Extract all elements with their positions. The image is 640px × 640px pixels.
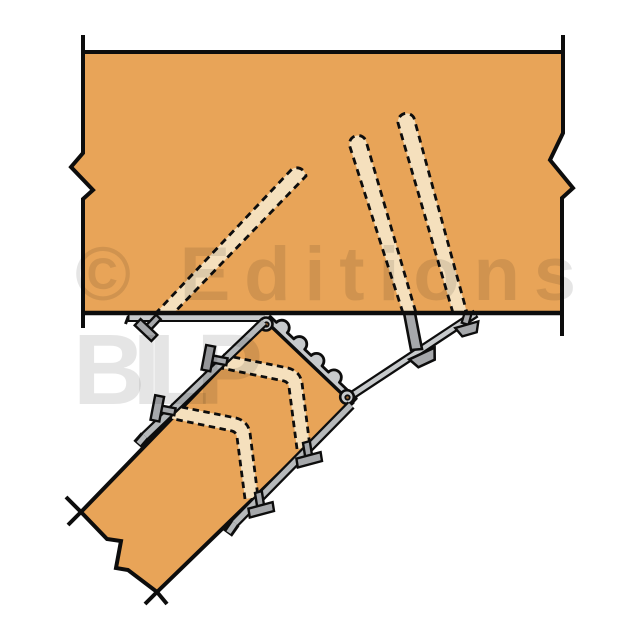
svg-text:BILP: BILP [73, 314, 263, 426]
svg-text:© Editions: © Editions [75, 232, 576, 317]
